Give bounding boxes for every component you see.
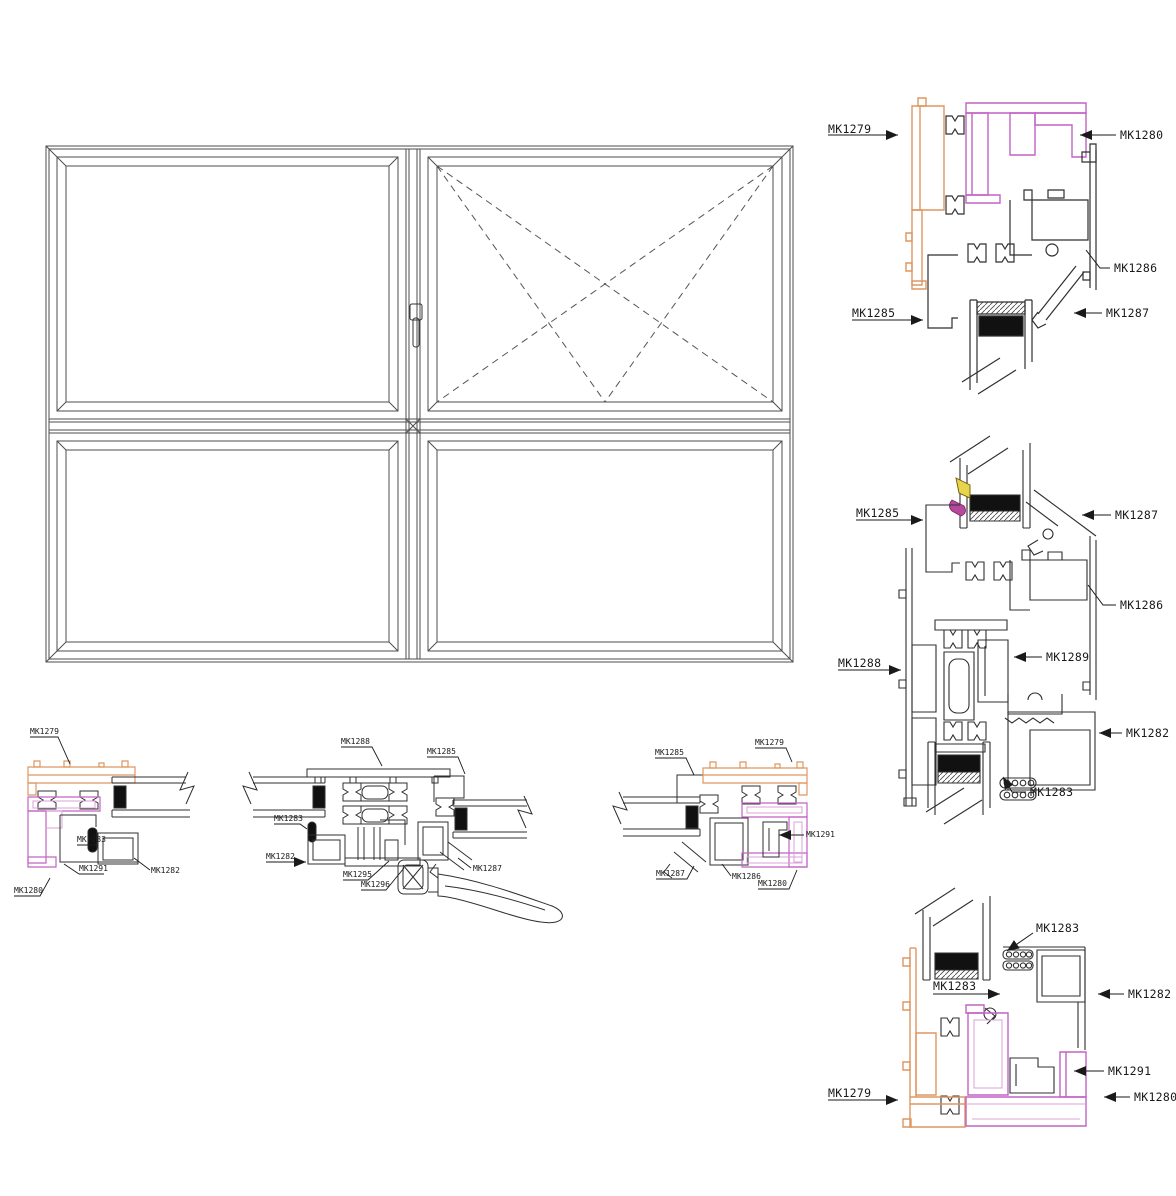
- part-label: MK1279: [30, 727, 59, 736]
- part-label: MK1280: [1134, 1090, 1176, 1104]
- part-label: MK1280: [758, 879, 787, 888]
- part-label: MK1287: [473, 864, 502, 873]
- frame-rail: [307, 769, 450, 783]
- part-label: MK1288: [838, 656, 881, 670]
- part-label: MK1285: [655, 748, 684, 757]
- part-label: MK1283: [933, 979, 976, 993]
- section-detail-bottom-right: [828, 888, 1130, 1127]
- sash-top-left: [57, 157, 398, 411]
- part-label: MK1279: [828, 122, 871, 136]
- part-label: MK1279: [828, 1086, 871, 1100]
- thermal-breaks: [38, 791, 98, 809]
- glass-unit: [112, 772, 194, 817]
- glazing-bead-profiles: [928, 144, 1096, 328]
- part-label: MK1296: [361, 880, 390, 889]
- thermal-breaks: [941, 1018, 959, 1114]
- glass-unit: [915, 888, 990, 980]
- part-label: MK1285: [852, 306, 895, 320]
- part-label: MK1287: [656, 869, 685, 878]
- glass-unit-right: [453, 796, 532, 838]
- sash-profiles-black: [664, 775, 748, 878]
- glazing-bead-small: [763, 822, 787, 857]
- part-label: MK1282: [151, 866, 180, 875]
- part-label: MK1291: [806, 830, 835, 839]
- part-label: MK1285: [856, 506, 899, 520]
- section-detail-left-3: [613, 748, 807, 889]
- frame-profile-orange: [906, 98, 944, 289]
- frame-profile-orange: [703, 762, 807, 795]
- window-elevation: [46, 146, 793, 662]
- glazing-bead-box: [308, 822, 345, 864]
- part-label: MK1288: [341, 737, 370, 746]
- part-label: MK1291: [79, 864, 108, 873]
- part-label: MK1282: [1126, 726, 1169, 740]
- glass-unit: [962, 300, 1032, 394]
- mullions: [49, 149, 790, 659]
- part-label: MK1287: [1106, 306, 1149, 320]
- part-label: MK1280: [1120, 128, 1163, 142]
- part-label: MK1282: [266, 852, 295, 861]
- casement-opening-symbol: [437, 166, 773, 402]
- part-label: MK1283: [1036, 921, 1079, 935]
- lock-hardware: [984, 1008, 996, 1024]
- part-label: MK1283: [274, 814, 303, 823]
- part-label: MK1282: [1128, 987, 1171, 1001]
- thermal-breaks: [742, 786, 796, 804]
- glazing-bead-small: [1010, 1058, 1054, 1093]
- sash-bottom-right: [428, 441, 782, 651]
- cad-drawing: [0, 0, 1176, 1196]
- sash-profile-purple: [966, 103, 1086, 203]
- hardware-magenta: [950, 500, 966, 516]
- part-label: MK1280: [14, 886, 43, 895]
- part-label: MK1289: [1046, 650, 1089, 664]
- part-label: MK1286: [732, 872, 761, 881]
- glass-unit-left: [243, 772, 325, 817]
- part-label: MK1283: [1030, 785, 1073, 799]
- glass-unit: [613, 792, 700, 836]
- part-label: MK1286: [1114, 261, 1157, 275]
- part-label: MK1283: [77, 835, 106, 844]
- part-label: MK1285: [427, 747, 456, 756]
- sash-bottom-left: [57, 441, 398, 651]
- part-label: MK1287: [1115, 508, 1158, 522]
- sash-profile-purple: [966, 1005, 1086, 1126]
- part-label: MK1279: [755, 738, 784, 747]
- section-detail-left-2: [243, 747, 562, 923]
- part-label: MK1291: [1108, 1064, 1151, 1078]
- gasket-strips: [1003, 950, 1033, 970]
- hardware-yellow: [956, 478, 970, 498]
- part-label: MK1295: [343, 870, 372, 879]
- part-label: MK1286: [1120, 598, 1163, 612]
- cad-drawing-canvas: MK1279 MK1280 MK1286 MK1285 MK1287 MK128…: [0, 0, 1176, 1196]
- mullion-profile: [343, 783, 420, 866]
- thermal-breaks: [946, 116, 1014, 262]
- section-detail-top-right: [828, 98, 1116, 394]
- section-detail-middle-right: [838, 436, 1122, 824]
